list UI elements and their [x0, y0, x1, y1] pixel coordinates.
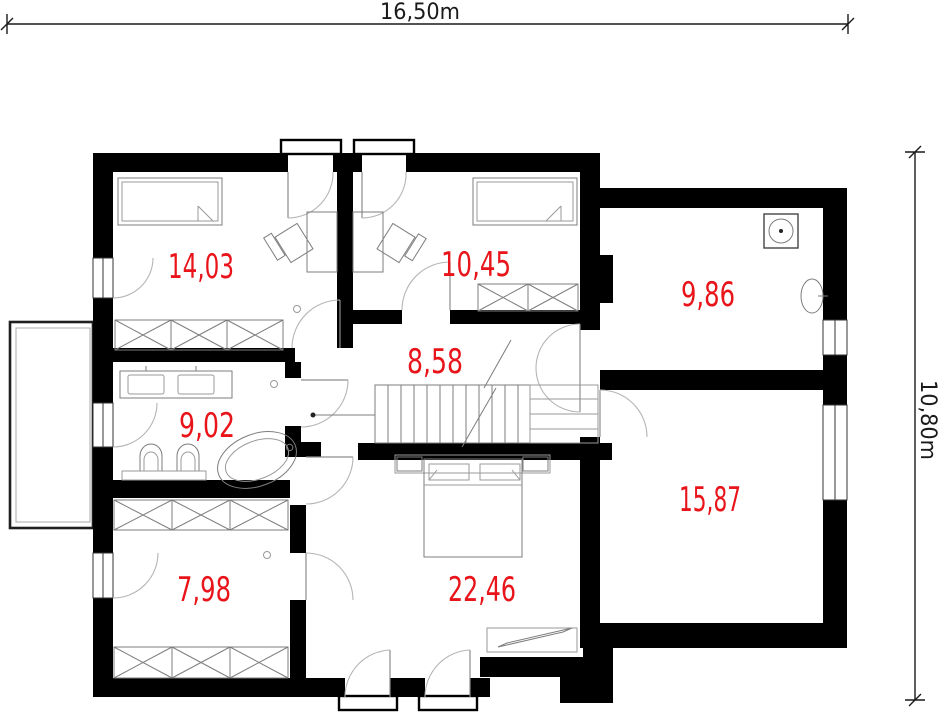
bath-step — [122, 471, 206, 480]
washing-machine — [764, 214, 798, 248]
room-area-label-bedroom-right: 10,45 — [441, 245, 511, 285]
door-dormer-top-left — [288, 172, 333, 218]
top-dimension-line: 16,50m — [1, 0, 854, 34]
wardrobe-bedroom-right — [478, 284, 578, 311]
wardrobe-room-bottom — [114, 647, 288, 678]
window-swing-wardrobe-room — [113, 553, 158, 598]
window-right-utility — [823, 320, 847, 355]
double-bed — [395, 455, 550, 557]
door-bathroom — [301, 380, 348, 427]
window-right-room — [823, 405, 847, 500]
room-labels: 14,03 10,45 9,86 8,58 9,02 15,87 7,98 22… — [168, 245, 741, 610]
floor-plan-drawing: 16,50m 10,80m — [0, 0, 944, 712]
door-dormer-top-right — [362, 172, 406, 218]
stair-start-dot — [311, 413, 316, 418]
single-bed-right — [473, 178, 577, 225]
right-dimension-line: 10,80m — [905, 146, 940, 706]
room-area-label-room-right: 15,87 — [679, 480, 741, 520]
switch-dot — [271, 381, 278, 388]
side-terrace-outline — [10, 322, 93, 528]
desk-right — [353, 212, 426, 272]
window-left-bedroom — [93, 258, 113, 298]
dormer-box-bottom-right — [419, 696, 477, 710]
door-master-bedroom — [306, 457, 353, 504]
bathroom-vanity — [120, 366, 232, 398]
window-swing-bedroom — [113, 258, 153, 298]
door-bedroom-left — [292, 300, 340, 348]
switch-dot — [294, 306, 301, 313]
wardrobe-bedroom-left — [115, 320, 283, 350]
door-right-room — [600, 390, 647, 437]
window-swing-bathroom — [113, 403, 157, 447]
room-area-label-hall: 8,58 — [407, 342, 463, 382]
door-wardrobe-room — [306, 553, 353, 600]
bidet — [177, 444, 199, 471]
room-area-label-bathroom: 9,02 — [179, 406, 235, 446]
height-dimension-label: 10,80m — [915, 380, 940, 460]
toilet — [140, 444, 162, 471]
room-area-label-utility: 9,86 — [681, 275, 735, 315]
desk-left — [264, 212, 337, 272]
width-dimension-label: 16,50m — [380, 0, 460, 25]
room-area-label-bedroom-left: 14,03 — [168, 247, 234, 287]
room-area-label-master: 22,46 — [448, 570, 516, 610]
single-bed-left — [118, 178, 222, 225]
switch-dot — [264, 552, 271, 559]
window-left-wardrobe-room — [93, 553, 113, 598]
window-left-bathroom — [93, 403, 113, 447]
stair-break-line — [462, 340, 511, 447]
room-area-label-wardrobe-room: 7,98 — [177, 570, 231, 610]
dormer-box-bottom-left — [339, 696, 397, 710]
floor-plan-canvas: 16,50m 10,80m — [0, 0, 944, 712]
tv-shelf — [487, 628, 577, 652]
wardrobe-room-top — [114, 500, 288, 530]
dormer-box-top-right — [354, 140, 414, 154]
dormer-box-top-left — [281, 140, 341, 154]
dormer-windows — [281, 140, 477, 710]
